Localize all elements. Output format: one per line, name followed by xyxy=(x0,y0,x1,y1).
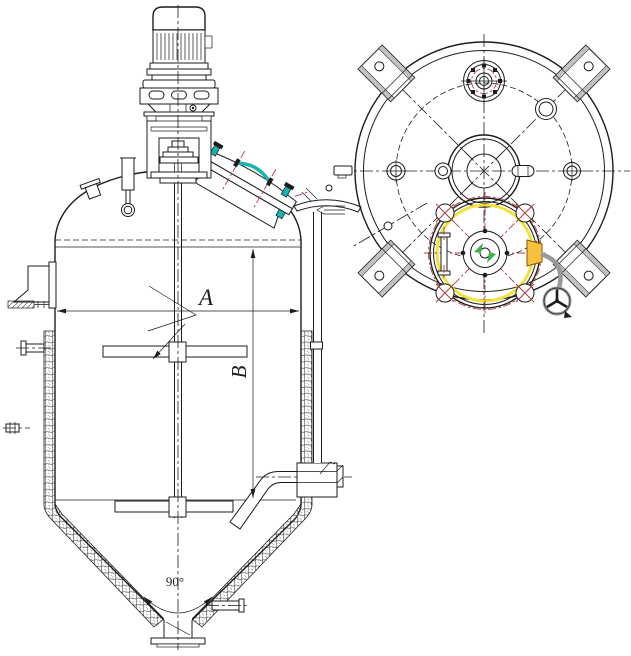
manway-clamp-nw xyxy=(436,204,454,222)
manway-clamp-ne xyxy=(516,204,534,222)
handwheel xyxy=(544,288,572,318)
sight-slot-right xyxy=(512,166,534,177)
gear-reducer xyxy=(140,80,218,104)
cone-side-nozzle xyxy=(206,599,250,612)
post-collar xyxy=(311,342,323,349)
motor-junction-box xyxy=(205,36,212,48)
small-port-lower-left xyxy=(384,222,392,230)
small-circle-left xyxy=(326,185,332,191)
nozzle-right-pitch xyxy=(562,161,582,181)
drain-stub-left xyxy=(3,422,30,434)
nozzle-upper-right xyxy=(536,99,557,120)
nozzle-left-pitch xyxy=(385,160,407,182)
agitator-motor xyxy=(147,7,212,80)
support-lug-left xyxy=(8,262,56,308)
cone-angle-label: 90° xyxy=(166,574,184,589)
pipe-end-flange xyxy=(337,466,343,487)
dimension-a-label: A xyxy=(197,285,214,310)
manway-clamp-se xyxy=(516,284,534,302)
cip-nozzle xyxy=(80,179,104,201)
flanged-nozzle-top xyxy=(461,58,507,104)
side-stub-left xyxy=(334,166,352,175)
upper-paddle-impeller xyxy=(103,342,247,362)
spray-ball-nozzle xyxy=(120,158,136,217)
manway-clamp-sw xyxy=(436,284,454,302)
top-plan-view xyxy=(317,34,630,334)
handwheel-arrow xyxy=(564,311,572,318)
manway-plan xyxy=(424,192,546,316)
dimension-b-label: B xyxy=(227,365,251,378)
front-elevation-view: 90° xyxy=(3,5,361,650)
drive-stand xyxy=(144,104,214,116)
dimension-b: B xyxy=(227,249,253,498)
seal-housing-frame xyxy=(147,116,211,183)
anchor-bolt-hatch xyxy=(8,301,34,308)
motor-cap xyxy=(153,7,205,30)
hinge-block xyxy=(527,240,542,266)
mixing-tank-engineering-drawing: 90° xyxy=(0,0,631,656)
wall-nozzle-box xyxy=(297,462,343,497)
drawing-canvas: 90° xyxy=(0,0,631,656)
cone-bottom xyxy=(63,519,295,620)
nozzle-inner-left xyxy=(435,163,451,179)
insulation-jacket-left xyxy=(44,331,164,627)
